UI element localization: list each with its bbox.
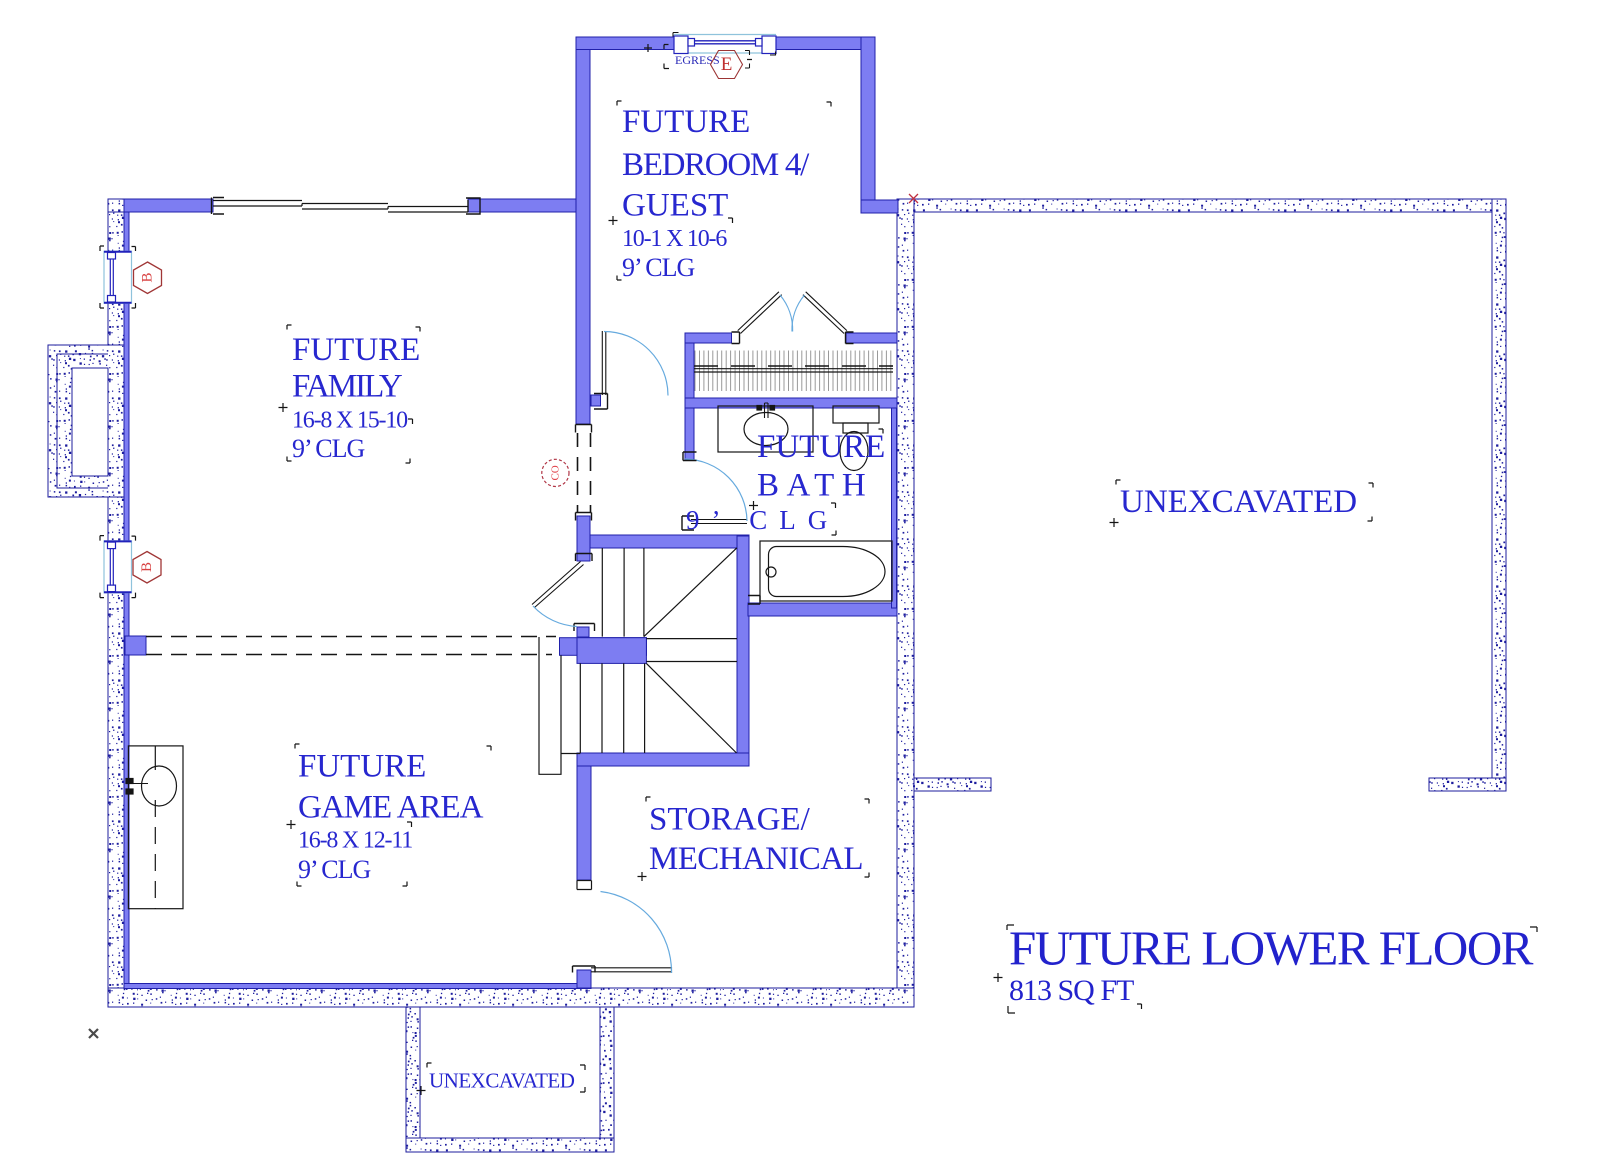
svg-text:FUTURE LOWER FLOOR: FUTURE LOWER FLOOR bbox=[1009, 921, 1534, 976]
svg-text:9’ CLG: 9’ CLG bbox=[292, 434, 364, 463]
svg-text:GUEST: GUEST bbox=[622, 188, 728, 224]
svg-text:CO: CO bbox=[549, 465, 561, 480]
svg-text:FUTURE: FUTURE bbox=[757, 429, 885, 465]
svg-text:FAMILY: FAMILY bbox=[292, 369, 402, 405]
svg-text:16-8 X 15-10: 16-8 X 15-10 bbox=[292, 408, 408, 434]
svg-text:9’ CLG: 9’ CLG bbox=[298, 855, 370, 884]
svg-text:UNEXCAVATED: UNEXCAVATED bbox=[429, 1069, 575, 1093]
svg-text:FUTURE: FUTURE bbox=[292, 332, 420, 368]
svg-text:MECHANICAL: MECHANICAL bbox=[649, 841, 863, 877]
svg-text:E: E bbox=[721, 54, 733, 75]
svg-text:16-8 X 12-11: 16-8 X 12-11 bbox=[298, 828, 412, 854]
svg-text:813 SQ FT: 813 SQ FT bbox=[1009, 974, 1134, 1007]
svg-text:BEDROOM 4/: BEDROOM 4/ bbox=[622, 147, 810, 183]
svg-text:9’ CLG: 9’ CLG bbox=[686, 505, 839, 535]
svg-text:B: B bbox=[139, 562, 155, 572]
svg-text:FUTURE: FUTURE bbox=[298, 749, 426, 785]
svg-text:GAME AREA: GAME AREA bbox=[298, 790, 484, 826]
svg-text:9’ CLG: 9’ CLG bbox=[622, 253, 694, 282]
svg-text:UNEXCAVATED: UNEXCAVATED bbox=[1120, 484, 1357, 520]
svg-text:STORAGE/: STORAGE/ bbox=[649, 802, 811, 838]
svg-text:B: B bbox=[140, 272, 156, 282]
svg-text:FUTURE: FUTURE bbox=[622, 104, 750, 140]
svg-text:BATH: BATH bbox=[757, 468, 873, 504]
svg-text:10-1 X 10-6: 10-1 X 10-6 bbox=[622, 226, 727, 252]
